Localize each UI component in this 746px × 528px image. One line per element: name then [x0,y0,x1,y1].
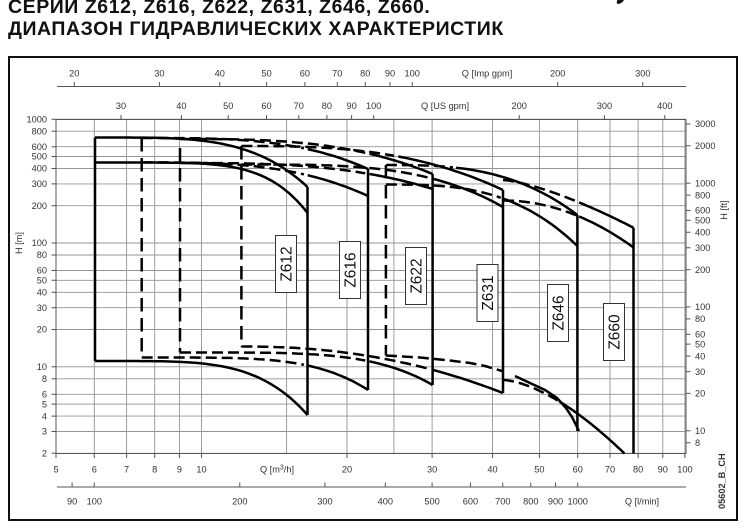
svg-text:Q [Imp gpm]: Q [Imp gpm] [462,69,513,79]
svg-text:900: 900 [548,497,563,507]
svg-text:40: 40 [37,288,47,298]
svg-text:100: 100 [366,101,381,111]
svg-text:100: 100 [695,302,710,312]
svg-text:40: 40 [487,465,497,475]
svg-text:40: 40 [695,351,705,361]
svg-text:10: 10 [196,465,206,475]
svg-text:70: 70 [294,101,304,111]
svg-text:90: 90 [385,69,395,79]
svg-text:1000: 1000 [27,114,47,124]
svg-text:H [ft]: H [ft] [719,200,729,219]
svg-text:Z616: Z616 [343,252,360,287]
svg-text:600: 600 [695,206,710,216]
svg-text:200: 200 [512,101,527,111]
svg-text:Z622: Z622 [409,258,426,293]
svg-text:500: 500 [32,152,47,162]
svg-text:800: 800 [523,497,538,507]
svg-text:60: 60 [37,266,47,276]
svg-text:Z612: Z612 [279,246,296,281]
svg-text:Q [US gpm]: Q [US gpm] [421,101,469,111]
svg-text:500: 500 [695,216,710,226]
svg-text:60: 60 [300,69,310,79]
svg-text:400: 400 [657,101,672,111]
svg-text:Z660: Z660 [607,314,624,350]
svg-text:400: 400 [32,164,47,174]
svg-text:05602_B_CH: 05602_B_CH [717,453,727,509]
svg-text:100: 100 [87,497,102,507]
svg-text:Z631: Z631 [480,275,497,310]
svg-text:50: 50 [261,69,271,79]
svg-text:2000: 2000 [695,141,715,151]
svg-text:Q [l/min]: Q [l/min] [625,497,659,507]
svg-text:Q [m3/h]: Q [m3/h] [260,465,294,475]
svg-text:600: 600 [463,497,478,507]
svg-text:300: 300 [32,179,47,189]
svg-text:300: 300 [317,497,332,507]
svg-text:Z646: Z646 [551,295,568,330]
svg-text:9: 9 [177,465,182,475]
svg-text:6: 6 [92,465,97,475]
svg-text:700: 700 [495,497,510,507]
svg-text:80: 80 [37,250,47,260]
svg-text:3: 3 [42,427,47,437]
svg-text:20: 20 [37,325,47,335]
svg-text:300: 300 [695,243,710,253]
svg-text:10: 10 [37,362,47,372]
svg-text:100: 100 [32,238,47,248]
svg-text:1000: 1000 [695,178,715,188]
svg-text:90: 90 [346,101,356,111]
svg-text:60: 60 [261,101,271,111]
svg-text:100: 100 [405,69,420,79]
svg-text:100: 100 [677,465,692,475]
svg-text:50: 50 [223,101,233,111]
svg-text:5: 5 [42,399,47,409]
svg-text:20: 20 [342,465,352,475]
svg-text:90: 90 [67,497,77,507]
svg-text:30: 30 [37,303,47,313]
svg-text:60: 60 [695,330,705,340]
svg-text:30: 30 [427,465,437,475]
svg-text:20: 20 [69,69,79,79]
svg-text:70: 70 [332,69,342,79]
svg-text:40: 40 [176,101,186,111]
svg-text:30: 30 [116,101,126,111]
svg-text:300: 300 [635,69,650,79]
svg-text:800: 800 [32,126,47,136]
svg-text:20: 20 [695,389,705,399]
svg-text:200: 200 [232,497,247,507]
svg-text:30: 30 [154,69,164,79]
svg-text:8: 8 [152,465,157,475]
svg-text:80: 80 [322,101,332,111]
svg-text:50: 50 [534,465,544,475]
svg-text:70: 70 [605,465,615,475]
svg-text:300: 300 [597,101,612,111]
svg-text:90: 90 [658,465,668,475]
svg-text:H [m]: H [m] [14,232,24,254]
svg-text:50: 50 [695,339,705,349]
svg-text:80: 80 [633,465,643,475]
svg-text:2: 2 [42,449,47,459]
svg-text:10: 10 [695,426,705,436]
svg-text:80: 80 [695,314,705,324]
svg-text:200: 200 [32,201,47,211]
svg-text:200: 200 [695,265,710,275]
svg-text:7: 7 [124,465,129,475]
svg-text:6: 6 [42,390,47,400]
svg-text:60: 60 [573,465,583,475]
svg-text:500: 500 [424,497,439,507]
svg-text:200: 200 [550,69,565,79]
svg-text:50: 50 [37,276,47,286]
svg-text:3000: 3000 [695,119,715,129]
svg-text:8: 8 [42,374,47,384]
svg-text:80: 80 [360,69,370,79]
svg-text:4: 4 [42,411,47,421]
svg-text:30: 30 [695,367,705,377]
svg-text:600: 600 [32,142,47,152]
svg-text:8: 8 [695,438,700,448]
svg-text:400: 400 [378,497,393,507]
svg-text:1000: 1000 [567,497,587,507]
svg-text:40: 40 [215,69,225,79]
svg-text:400: 400 [695,228,710,238]
svg-text:800: 800 [695,190,710,200]
svg-text:5: 5 [53,465,58,475]
